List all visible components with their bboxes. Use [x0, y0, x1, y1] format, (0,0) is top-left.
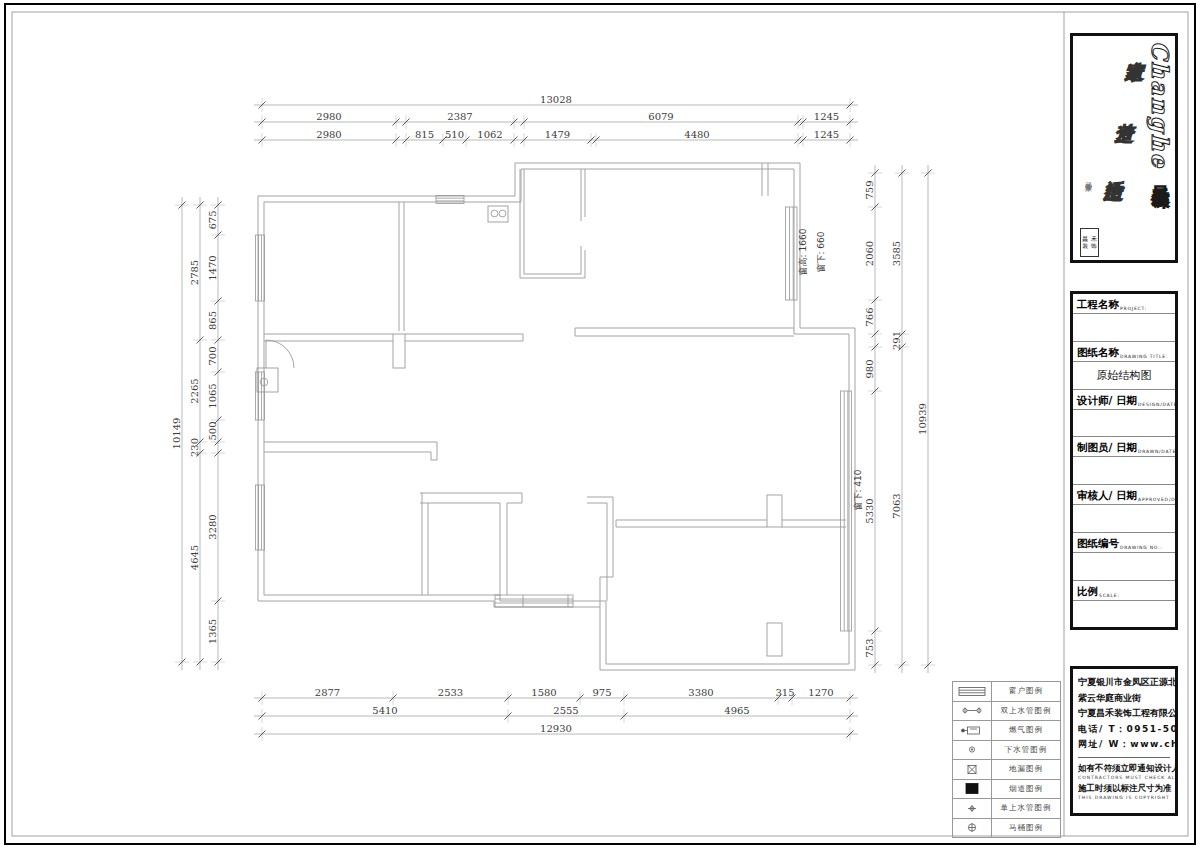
field-label: 图纸编号DRAWING NO.: [1073, 533, 1175, 553]
note-2-en: THIS DRAWING IS COPYRIGHT [1078, 794, 1175, 802]
dim-text: 1065 [207, 383, 218, 408]
window-annotation: 窗下: 660 [816, 231, 826, 272]
legend-row: 马桶图例 [953, 819, 1060, 838]
legend-row: 下水管图例 [953, 741, 1060, 761]
field-value [1073, 410, 1175, 438]
window-left-3 [256, 485, 265, 550]
single-water-icon [953, 799, 992, 818]
dim-text: 700 [207, 346, 218, 365]
address-line-1: 宁夏银川市金凤区正源北街 [1078, 675, 1175, 691]
field-label-cn: 制图员/ 日期 [1077, 441, 1137, 455]
field-label-cn: 设计师/ 日期 [1077, 394, 1137, 408]
dim-text: 4480 [684, 129, 709, 140]
dim-text: 500 [207, 421, 218, 440]
dimension-chains: 1302829802387607912452980815510106214794… [171, 94, 936, 742]
dim-text: 2980 [316, 111, 341, 122]
field-value [1073, 553, 1175, 581]
divider [1078, 757, 1170, 758]
toilet-icon [953, 819, 992, 838]
contact-block: 宁夏银川市金凤区正源北街 紫云华庭商业街 宁夏昌禾装饰工程有限公司 电话/ T：… [1070, 666, 1178, 816]
flue-icon [953, 780, 992, 799]
dim-text: 2265 [189, 378, 200, 403]
dim-text: 759 [864, 180, 875, 199]
window-right-upper [786, 207, 798, 300]
dim-text: 13028 [540, 94, 572, 105]
field-label: 比例SCALE: [1073, 581, 1175, 601]
dim-chain: 6751470865700106550032801365 [207, 197, 226, 670]
dim-chain: 278522652304645 [189, 197, 208, 670]
dim-text: 980 [864, 359, 875, 378]
dim-text: 1470 [207, 255, 218, 280]
dim-chain: 13028 [254, 94, 858, 113]
field-label-cn: 图纸编号 [1077, 537, 1119, 551]
dim-text: 753 [864, 638, 875, 657]
dim-text: 865 [207, 311, 218, 330]
dim-text: 5410 [372, 705, 397, 716]
legend-label: 单上水管图例 [992, 799, 1060, 818]
dim-chain: 2980238760791245 [254, 111, 858, 130]
title-field: 图纸编号DRAWING NO.: [1073, 533, 1175, 581]
dim-text: 315 [775, 687, 794, 698]
floor-drain-icon [953, 760, 992, 779]
dim-text: 3280 [207, 514, 218, 539]
dim-text: 2877 [315, 687, 340, 698]
title-field: 工程名称PROJECT: [1073, 294, 1175, 342]
dim-chain: 12930 [254, 723, 858, 742]
note-1-cn: 如有不符须立即通知设计人员 [1078, 762, 1175, 774]
field-label-en: DRAWN/DATE: [1138, 449, 1175, 455]
dim-text: 10149 [171, 418, 182, 450]
dim-chain: 541025554965 [254, 705, 858, 724]
dim-text: 675 [207, 210, 218, 229]
title-field: 审核人/ 日期APPROVED/DATE: [1073, 485, 1175, 533]
double-water-icon [953, 702, 992, 721]
dim-text: 4645 [189, 545, 200, 570]
drain-pipe-icon [953, 741, 992, 760]
field-label-cn: 比例 [1077, 585, 1098, 599]
legend-label: 马桶图例 [992, 819, 1060, 838]
dim-chain: 29808155101062147944801245 [254, 129, 858, 148]
dim-text: 975 [592, 687, 611, 698]
phone-number: 电话/ T：0951-5047688 [1078, 722, 1175, 738]
field-label-cn: 图纸名称 [1077, 346, 1119, 360]
dim-text: 2533 [438, 687, 463, 698]
field-label-en: DESIGN/DATE: [1138, 402, 1175, 408]
window-annotation: 窗高: 1660 [798, 228, 808, 275]
field-value [1073, 505, 1175, 533]
field-value: 原始结构图 [1073, 362, 1175, 390]
dim-text: 1580 [531, 687, 556, 698]
dim-text: 1062 [477, 129, 502, 140]
title-field: 制图员/ 日期DRAWN/DATE: [1073, 437, 1175, 485]
field-label: 审核人/ 日期APPROVED/DATE: [1073, 485, 1175, 505]
dim-text: 6079 [648, 111, 673, 122]
field-value [1073, 457, 1175, 485]
dim-chain: 10149 [171, 197, 190, 670]
dim-text: 12930 [540, 723, 572, 734]
legend-label: 下水管图例 [992, 741, 1060, 760]
gas-icon [953, 721, 992, 740]
dim-text: 7063 [891, 493, 902, 518]
stove-symbol [488, 206, 508, 222]
legend-row: 双上水管图例 [953, 702, 1060, 722]
title-field: 设计师/ 日期DESIGN/DATE: [1073, 390, 1175, 438]
dim-chain: 75920607669805330753 [864, 165, 883, 673]
legend-row: 地漏图例 [953, 760, 1060, 780]
dim-text: 1270 [808, 687, 833, 698]
legend-label: 双上水管图例 [992, 702, 1060, 721]
title-field: 图纸名称DRAWING TITLE:原始结构图 [1073, 342, 1175, 390]
fixtures [257, 206, 508, 392]
legend-row: 单上水管图例 [953, 799, 1060, 819]
seal-char: 饰 [1091, 243, 1097, 250]
drawing-sheet: 1302829802387607912452980815510106214794… [0, 0, 1200, 848]
company-seal: 昌禾装饰 [1080, 228, 1099, 257]
legend-row: 烟道图例 [953, 780, 1060, 800]
note-2-cn: 施工时须以标注尺寸为准 [1078, 782, 1175, 794]
legend-row: 窗户图例 [953, 682, 1060, 702]
legend-row: 燃气图例 [953, 721, 1060, 741]
website-url: 网址/ W：www.chzs.net [1078, 737, 1175, 753]
dim-text: 3585 [891, 241, 902, 266]
dim-text: 815 [415, 129, 434, 140]
window-right-bay [841, 391, 852, 631]
brand-column: Changhe 昌禾装饰 [1149, 41, 1172, 179]
dim-chain: 35852917063 [891, 165, 910, 673]
brand-name-cn: 昌禾装饰 [1152, 171, 1170, 179]
dim-text: 2980 [316, 129, 341, 140]
field-value [1073, 601, 1175, 629]
dim-text: 2555 [553, 705, 578, 716]
window-annotation: 窗下: 410 [853, 469, 863, 510]
dim-text: 2060 [864, 241, 875, 266]
dim-text: 230 [189, 438, 200, 457]
title-block-fields: 工程名称PROJECT:图纸名称DRAWING TITLE:原始结构图设计师/ … [1070, 291, 1178, 630]
window-icon [953, 682, 992, 701]
field-label-cn: 审核人/ 日期 [1077, 489, 1137, 503]
field-label-en: DRAWING NO.: [1120, 545, 1163, 551]
dim-text: 5330 [864, 498, 875, 523]
field-label-en: PROJECT: [1120, 306, 1147, 312]
dim-text: 3380 [688, 687, 713, 698]
field-label: 工程名称PROJECT: [1073, 294, 1175, 314]
brand-name-en: Changhe [1149, 41, 1172, 169]
dim-text: 10939 [917, 403, 928, 435]
legend-label: 烟道图例 [992, 780, 1060, 799]
field-value [1073, 314, 1175, 342]
seal-char: 装 [1082, 243, 1088, 250]
dim-chain: 10939 [917, 165, 936, 673]
dim-text: 510 [445, 129, 464, 140]
company-name: 宁夏昌禾装饰工程有限公司 [1078, 706, 1175, 722]
title-field: 比例SCALE: [1073, 581, 1175, 629]
legend-label: 地漏图例 [992, 760, 1060, 779]
dim-text: 1245 [814, 111, 839, 122]
dim-text: 1365 [207, 619, 218, 644]
field-label-en: DRAWING TITLE: [1120, 354, 1168, 360]
legend-label: 燃气图例 [992, 721, 1060, 740]
entry-door-arc [257, 340, 294, 392]
field-label: 制图员/ 日期DRAWN/DATE: [1073, 437, 1175, 457]
dim-text: 2387 [447, 111, 472, 122]
field-label-en: SCALE: [1099, 593, 1120, 599]
signature-text: 品质专家 [1083, 176, 1093, 180]
window-symbols [256, 196, 852, 632]
note-1-en: CONTRACTORS MUST CHECK ALL D [1078, 774, 1175, 782]
logo-block: Changhe 昌禾装饰 造家 造梦 造生活 品质专家 昌禾装饰 [1070, 33, 1178, 263]
floor-plan-walls [258, 163, 855, 670]
field-label: 设计师/ 日期DESIGN/DATE: [1073, 390, 1175, 410]
dim-text: 4965 [724, 705, 749, 716]
dim-text: 1245 [814, 129, 839, 140]
window-left-1 [256, 235, 265, 301]
window-annotations: 窗高: 1660窗下: 660窗下: 410 [798, 228, 863, 510]
field-label-cn: 工程名称 [1077, 298, 1119, 312]
legend-label: 窗户图例 [992, 682, 1060, 701]
legend-table: 窗户图例双上水管图例燃气图例下水管图例地漏图例烟道图例单上水管图例马桶图例 [952, 681, 1061, 838]
dim-chain: 28772533158097533803151270 [254, 687, 858, 706]
dim-text: 1479 [545, 129, 570, 140]
address-line-2: 紫云华庭商业街 [1078, 691, 1175, 707]
field-label: 图纸名称DRAWING TITLE: [1073, 342, 1175, 362]
dim-text: 766 [864, 307, 875, 326]
field-label-en: APPROVED/DATE: [1138, 497, 1175, 503]
dim-text: 2785 [189, 260, 200, 285]
